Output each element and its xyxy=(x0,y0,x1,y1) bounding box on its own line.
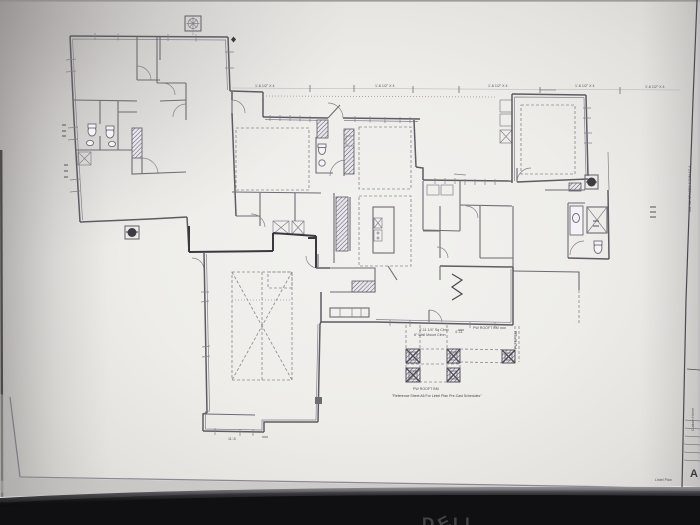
svg-text:"Reference Sheet A6 For Lintel: "Reference Sheet A6 For Lintel Plan Pre-… xyxy=(392,394,482,398)
svg-text:L: L xyxy=(465,514,475,525)
svg-text:Custom Home: Custom Home xyxy=(691,408,695,431)
svg-text:PW ROOFT BM: PW ROOFT BM xyxy=(413,387,439,391)
svg-text:NO. AL SPACES S DIM AS A: NO. AL SPACES S DIM AS A xyxy=(688,165,692,212)
svg-text:A: A xyxy=(690,468,698,480)
svg-text:D: D xyxy=(422,514,434,525)
svg-text:1'-6 1/2" X 4: 1'-6 1/2" X 4 xyxy=(575,84,595,88)
svg-text:1'-6 1/2" X 4: 1'-6 1/2" X 4 xyxy=(255,84,275,88)
svg-text:1'-6 1/2" X 4: 1'-6 1/2" X 4 xyxy=(645,85,665,89)
svg-text:Lintel Plan: Lintel Plan xyxy=(655,478,672,482)
svg-text:11'-8: 11'-8 xyxy=(228,437,236,441)
svg-text:PW RF BM: PW RF BM xyxy=(514,331,518,349)
svg-text:L: L xyxy=(453,514,463,525)
svg-text:4'-11: 4'-11 xyxy=(455,330,463,334)
svg-text:PW ROOFT BM: PW ROOFT BM xyxy=(473,326,499,330)
svg-text:4'-11 1/4" Sq Clmn: 4'-11 1/4" Sq Clmn xyxy=(419,328,449,332)
svg-text:1'-6 1/2" X 4: 1'-6 1/2" X 4 xyxy=(488,84,508,88)
svg-text:8" Wall Mount Clmn: 8" Wall Mount Clmn xyxy=(414,333,446,337)
svg-text:1'-6 1/2" X 4: 1'-6 1/2" X 4 xyxy=(375,84,395,88)
